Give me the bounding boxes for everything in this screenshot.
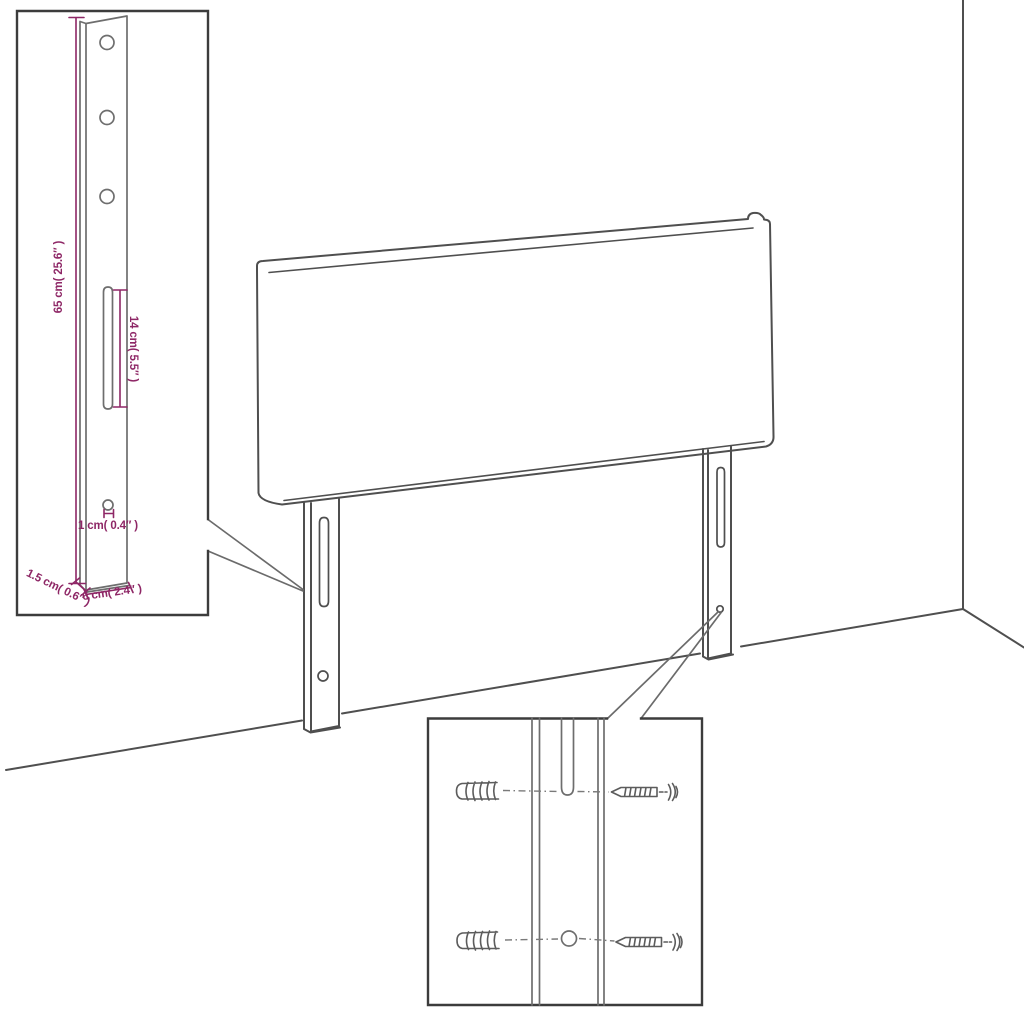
- left-leg-outline: [304, 499, 340, 733]
- leg-hole: [562, 931, 577, 946]
- mounting-detail-callout-lines: [608, 612, 722, 719]
- leg-outline: [80, 16, 129, 592]
- dimension-lines: [69, 18, 133, 600]
- slot-length-dimension-line: [114, 290, 128, 407]
- leg-hole: [100, 111, 114, 125]
- callout-line: [208, 520, 303, 592]
- screw-icon: [616, 934, 682, 951]
- left-leg-hole: [318, 671, 328, 681]
- leg-height-dimension-line: [69, 18, 86, 584]
- headboard-right-leg: [703, 447, 733, 660]
- mounting-detail-inset: [428, 719, 702, 1006]
- wall-plug-icon: [457, 782, 499, 801]
- leg-front-view: [80, 16, 129, 592]
- headboard-panel: [257, 213, 774, 505]
- right-leg-slot: [717, 468, 725, 548]
- headboard-left-leg: [304, 499, 340, 733]
- leg-hole: [100, 190, 114, 204]
- panel-outline: [257, 213, 774, 505]
- leg-slot: [104, 287, 113, 409]
- left-leg-slot: [320, 518, 329, 607]
- right-leg-outline: [703, 447, 733, 660]
- callout-line: [608, 612, 722, 719]
- floor-line: [6, 609, 963, 770]
- leg-height-dimension-label: 65 cm( 25.6″ ): [53, 241, 65, 313]
- leg-detail-callout-lines: [208, 520, 303, 592]
- leg-slot: [562, 719, 574, 796]
- wall-corner-line: [963, 0, 1024, 648]
- hole-diameter-dimension-label: 1 cm( 0.4″ ): [78, 520, 138, 532]
- room-corner-lines: [6, 0, 1024, 770]
- line-art: [0, 0, 1024, 1024]
- wall-plug-icon: [457, 931, 499, 950]
- leg-bottom-hole: [103, 500, 113, 510]
- screw-icon: [612, 784, 678, 801]
- inset-box-border: [428, 719, 702, 1006]
- leg-strip-lines: [532, 719, 604, 1006]
- product-diagram-canvas: 65 cm( 25.6″ ) 14 cm( 5.5″ ) 1 cm( 0.4″ …: [0, 0, 1024, 1024]
- leg-hole: [100, 36, 114, 50]
- panel-edge-lines: [269, 228, 764, 501]
- slot-length-dimension-label: 14 cm( 5.5″ ): [127, 316, 139, 382]
